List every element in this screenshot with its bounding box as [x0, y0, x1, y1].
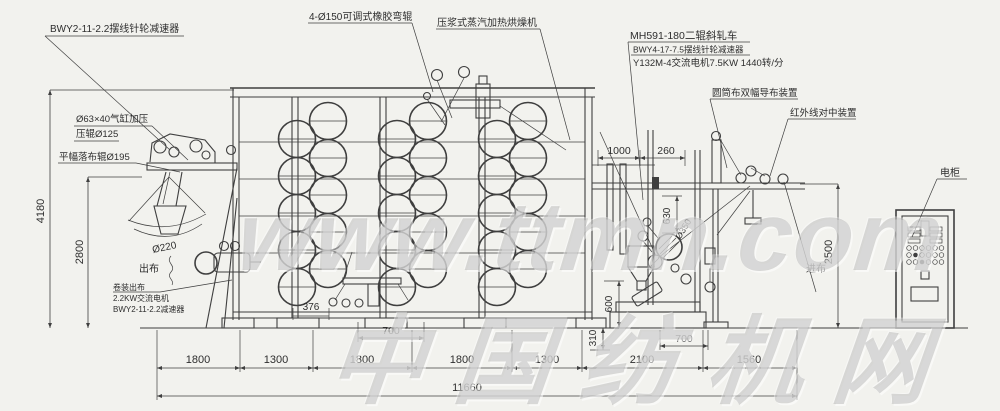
dim-310: 310: [588, 329, 599, 346]
label-flat-drop-roll: 平幅落布辊Ø195: [59, 151, 130, 163]
dim-row-1560: 1560: [737, 354, 761, 366]
fabric-path: [600, 132, 816, 292]
guide-device: [592, 132, 805, 329]
dim-row-1800c: 1800: [450, 354, 474, 366]
engineering-drawing-page: BWY2-11-2.2摆线针轮减速器 4-Ø150可调式橡胶弯辊 压浆式蒸汽加热…: [0, 0, 1000, 411]
bend-roller-mechanism: [424, 67, 567, 151]
label-air-cylinder: Ø63×40气缸加压: [76, 113, 149, 125]
label-padder-motor: Y132M-4交流电机7.5KW 1440转/分: [633, 57, 784, 69]
label-bend-roller: 4-Ø150可调式橡胶弯辊: [309, 10, 412, 23]
label-reducer-top-left: BWY2-11-2.2摆线针轮减速器: [50, 22, 179, 35]
label-padder-model: MH591-180二辊斜轧车: [630, 29, 737, 42]
dim-376: 376: [303, 302, 320, 313]
dim-600: 600: [604, 295, 615, 312]
label-padder-reducer: BWY4-17-7.5摆线针轮减速器: [633, 45, 744, 55]
dim-2800: 2800: [74, 240, 86, 264]
dim-row-2100: 2100: [630, 354, 654, 366]
dim-row-1300b: 1300: [535, 354, 559, 366]
dim-row-1800b: 1800: [350, 354, 374, 366]
control-cabinet: [896, 210, 954, 328]
drying-cylinders: [279, 103, 547, 306]
dim-2500: 2500: [823, 240, 835, 264]
dim-1000: 1000: [607, 145, 631, 157]
dim-700-right: 700: [675, 333, 693, 345]
dim-700-left: 700: [382, 325, 400, 337]
label-cloth-out: 出布: [139, 262, 159, 275]
label-roll-out-3: BWY2-11-2.2减速器: [113, 304, 184, 314]
dim-row-1300a: 1300: [264, 354, 288, 366]
label-guide-device: 圆筒布双幅导布装置: [712, 87, 798, 99]
dim-4180: 4180: [35, 199, 47, 223]
labels: BWY2-11-2.2摆线针轮减速器 4-Ø150可调式橡胶弯辊 压浆式蒸汽加热…: [50, 10, 960, 314]
label-roll-350: Ø350: [673, 217, 693, 241]
dim-260: 260: [657, 145, 675, 157]
label-infrared-device: 红外线对中装置: [790, 107, 857, 119]
dim-630: 630: [662, 207, 673, 224]
lower-cylinder-mechanism: [329, 252, 408, 307]
label-roll-220: Ø220: [151, 240, 178, 256]
label-roll-out-2: 2.2KW交流电机: [113, 293, 169, 303]
label-dryer: 压浆式蒸汽加热烘燥机: [437, 16, 537, 29]
label-roll-out-1: 卷装出布: [113, 282, 145, 292]
dim-row-1800a: 1800: [186, 354, 210, 366]
label-press-roll: 压辊Ø125: [76, 128, 118, 140]
label-cabinet: 电柜: [940, 166, 960, 179]
dim-11660: 11660: [452, 382, 482, 394]
machine-drawing: BWY2-11-2.2摆线针轮减速器 4-Ø150可调式橡胶弯辊 压浆式蒸汽加热…: [0, 0, 1000, 411]
